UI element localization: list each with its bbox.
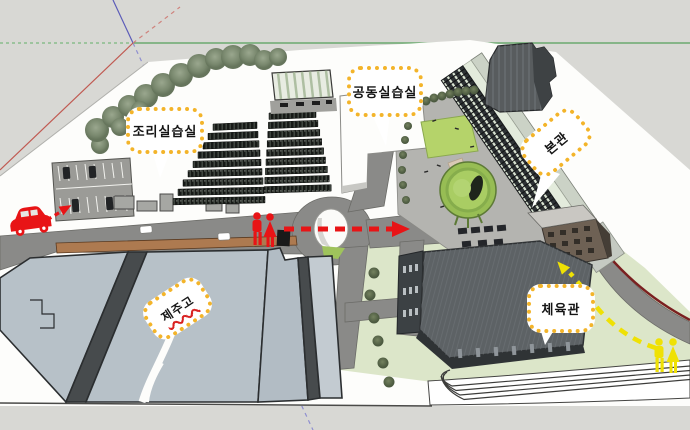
main-building-label: 본관 [540, 127, 572, 158]
callout-joint-lab: 공동실습실 [347, 66, 423, 117]
cooking-lab-label: 조리실습실 [133, 121, 198, 140]
tower-building [485, 43, 556, 112]
gym-label: 체육관 [542, 299, 581, 318]
callout-cooking-lab: 조리실습실 [126, 107, 204, 154]
white-car [140, 226, 152, 234]
greenhouse [270, 70, 337, 114]
joint-lab-label: 공동실습실 [353, 82, 418, 101]
campus-site-plan: 조리실습실 공동실습실 본관 제주고 체육관 [0, 0, 690, 430]
site-plan-scene [0, 0, 690, 430]
callout-gym: 체육관 [527, 284, 595, 333]
dark-car [277, 230, 291, 247]
jeju-high-label: 제주고 [158, 292, 198, 326]
white-car [218, 233, 230, 241]
